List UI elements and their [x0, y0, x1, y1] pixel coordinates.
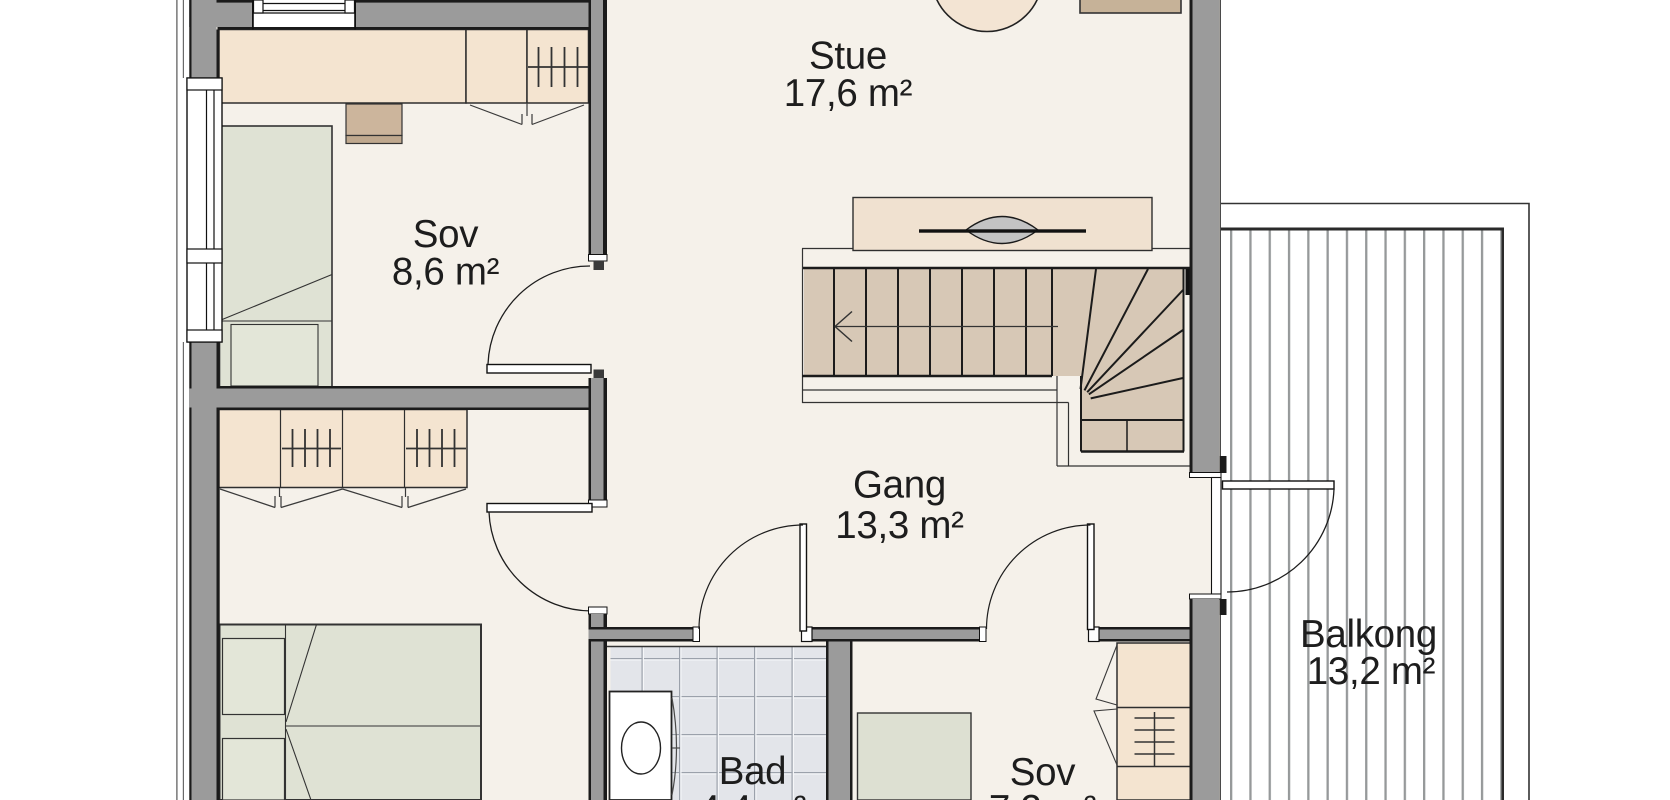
- svg-text:13,3 m²: 13,3 m²: [835, 504, 964, 547]
- svg-text:4,4 m²: 4,4 m²: [699, 788, 807, 800]
- svg-text:Gang: Gang: [853, 464, 946, 507]
- svg-text:Bad: Bad: [719, 750, 787, 793]
- svg-text:7,2 m²: 7,2 m²: [989, 788, 1097, 800]
- svg-text:13,2 m²: 13,2 m²: [1307, 650, 1436, 693]
- svg-text:17,6 m²: 17,6 m²: [784, 72, 913, 115]
- svg-text:8,6 m²: 8,6 m²: [392, 251, 500, 294]
